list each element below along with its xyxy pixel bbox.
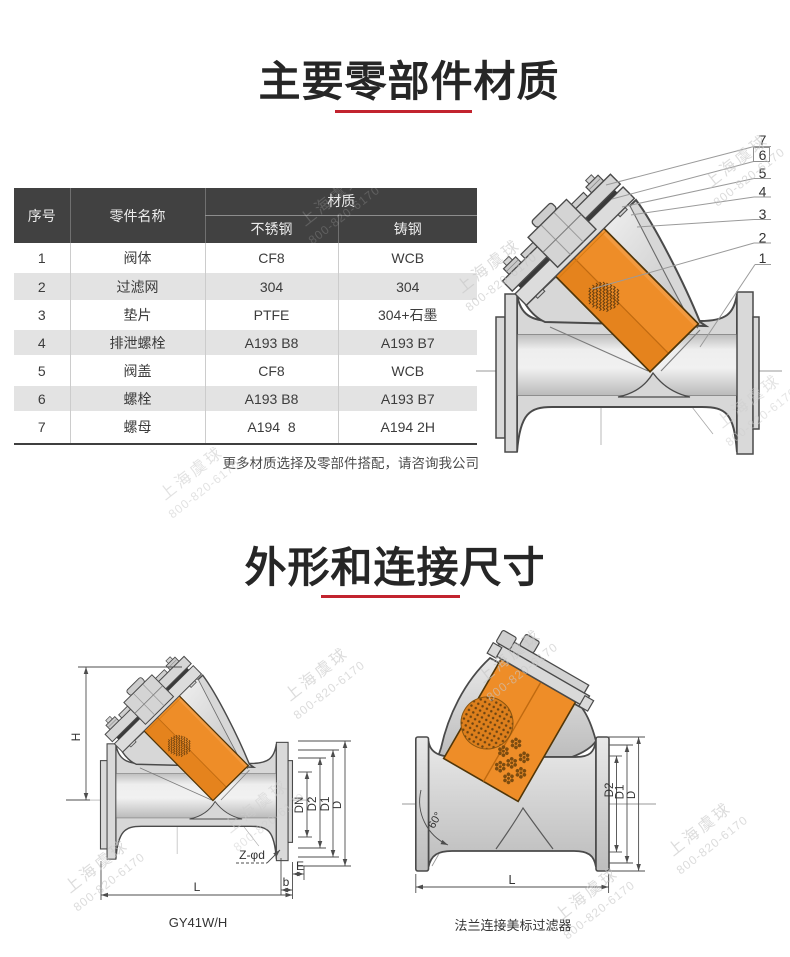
svg-text:D2: D2: [307, 797, 319, 812]
svg-text:D: D: [626, 791, 638, 799]
svg-text:D1: D1: [320, 797, 332, 812]
svg-text:H: H: [69, 733, 83, 742]
svg-text:4: 4: [759, 184, 767, 200]
svg-text:D: D: [332, 801, 344, 809]
svg-text:L: L: [509, 873, 516, 887]
svg-text:3: 3: [759, 206, 767, 222]
svg-text:1: 1: [759, 250, 767, 266]
svg-text:E: E: [296, 859, 304, 873]
svg-text:2: 2: [759, 230, 767, 246]
svg-text:D1: D1: [615, 785, 627, 800]
svg-text:b: b: [283, 875, 290, 889]
svg-text:L: L: [194, 880, 201, 894]
